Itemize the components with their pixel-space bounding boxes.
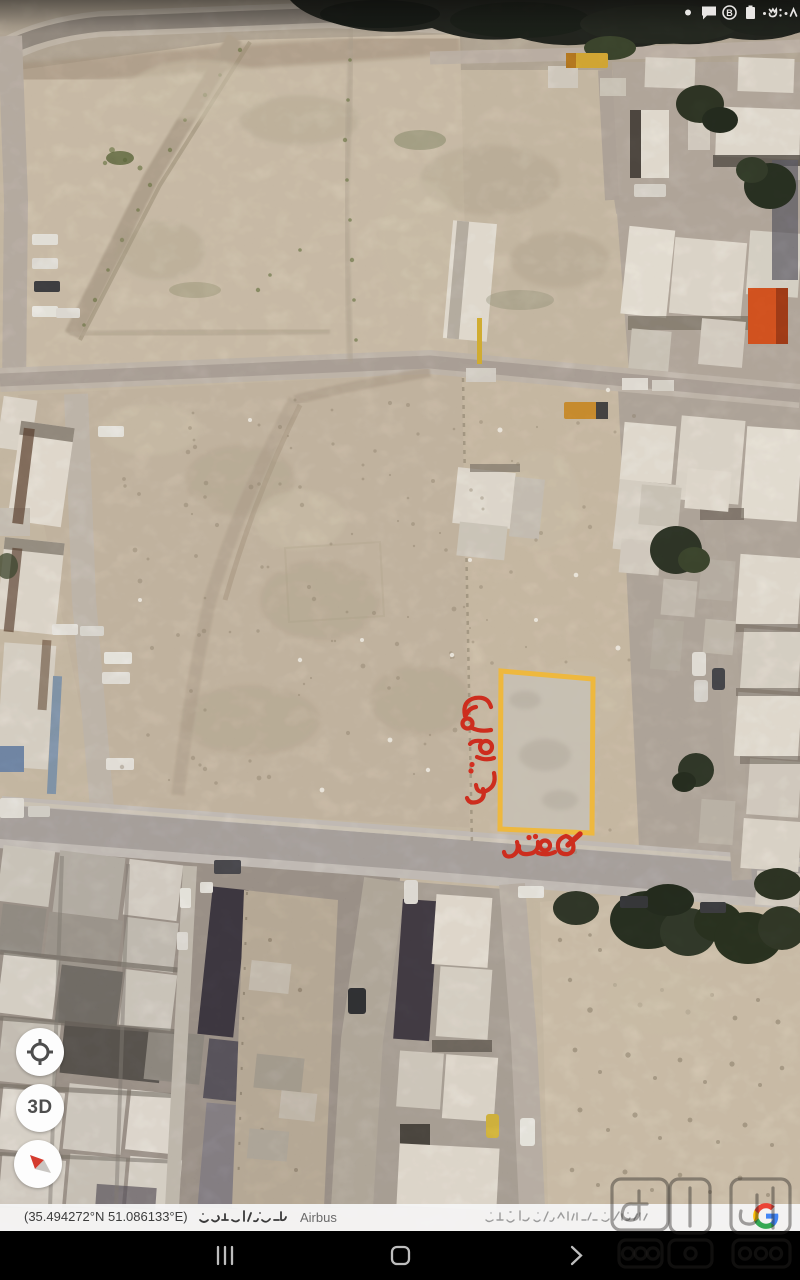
svg-text:B: B <box>726 8 733 18</box>
